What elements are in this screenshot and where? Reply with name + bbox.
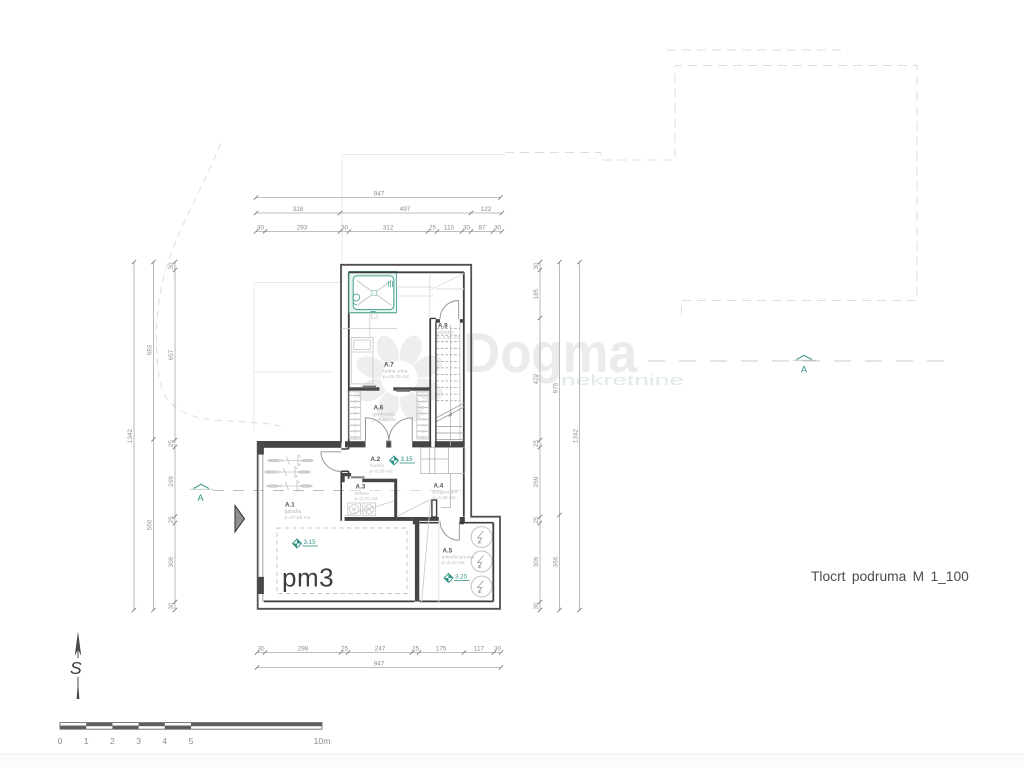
svg-text:tehnički prostor: tehnički prostor [442,555,476,561]
svg-text:p=15,26 m2: p=15,26 m2 [383,374,409,380]
svg-text:p=27,88 m2: p=27,88 m2 [285,515,311,521]
svg-text:30: 30 [257,224,265,231]
svg-text:306: 306 [533,556,540,567]
svg-text:radna soba: radna soba [383,369,408,375]
svg-text:30: 30 [533,262,540,270]
svg-text:366: 366 [552,556,559,567]
svg-text:25: 25 [533,440,540,448]
svg-text:p=3,70 m2: p=3,70 m2 [355,496,379,502]
svg-text:garaža: garaža [285,509,301,515]
svg-text:306: 306 [168,556,175,567]
svg-text:472: 472 [533,373,540,384]
svg-text:A.1: A.1 [285,502,295,509]
svg-text:1342: 1342 [127,428,134,443]
svg-text:Tlocrt podruma M 1_100: Tlocrt podruma M 1_100 [811,569,969,584]
svg-text:30: 30 [341,224,349,231]
svg-text:683: 683 [146,344,153,355]
svg-text:30: 30 [494,645,502,652]
svg-text:3.15: 3.15 [401,456,414,463]
svg-text:3: 3 [136,736,141,746]
svg-text:hodnik: hodnik [370,463,385,469]
svg-text:A.5: A.5 [443,548,453,555]
svg-text:947: 947 [374,190,385,197]
svg-text:25: 25 [412,645,420,652]
svg-text:p=4,80 m2: p=4,80 m2 [437,335,461,341]
svg-text:3.15: 3.15 [304,539,317,546]
svg-text:185: 185 [533,288,540,299]
svg-text:4: 4 [162,736,167,746]
svg-text:30: 30 [257,645,265,652]
svg-text:garderoba: garderoba [373,412,396,418]
svg-text:30: 30 [168,262,175,270]
svg-text:10m: 10m [314,736,331,746]
svg-text:0: 0 [58,736,63,746]
svg-text:A.6: A.6 [374,405,384,412]
svg-text:1: 1 [84,736,89,746]
svg-text:p=4,28 m2: p=4,28 m2 [433,495,457,501]
svg-text:A.2: A.2 [371,456,381,463]
svg-text:293: 293 [297,224,308,231]
svg-text:A.4: A.4 [434,483,444,490]
svg-text:298: 298 [298,645,309,652]
svg-text:p=3,08 m2: p=3,08 m2 [370,469,394,475]
svg-text:30: 30 [168,602,175,610]
svg-text:497: 497 [400,206,411,213]
svg-text:30: 30 [463,224,471,231]
svg-text:predprostor: predprostor [433,490,458,496]
svg-text:25: 25 [168,440,175,448]
svg-text:A: A [197,493,204,504]
svg-text:117: 117 [474,645,485,652]
svg-text:328: 328 [293,206,304,213]
svg-text:p=5,40 m2: p=5,40 m2 [373,417,397,423]
svg-text:p=4,20 m2: p=4,20 m2 [442,560,466,566]
svg-text:A.3: A.3 [356,484,366,491]
svg-text:947: 947 [374,660,385,667]
svg-text:A: A [801,365,808,376]
svg-text:A.7: A.7 [384,362,394,369]
svg-text:660: 660 [146,519,153,530]
svg-text:1342: 1342 [572,428,579,443]
svg-text:30: 30 [533,602,540,610]
svg-text:976: 976 [552,382,559,393]
svg-text:25: 25 [533,516,540,524]
svg-text:25: 25 [168,516,175,524]
svg-text:657: 657 [168,349,175,360]
svg-text:312: 312 [383,224,394,231]
svg-text:pm3: pm3 [282,563,334,593]
svg-text:247: 247 [375,645,386,652]
svg-text:269: 269 [533,476,540,487]
svg-text:25: 25 [429,224,437,231]
svg-text:ostava: ostava [355,491,370,497]
svg-text:3.20: 3.20 [455,574,468,581]
svg-text:stubište: stubište [437,330,454,336]
svg-text:30: 30 [494,224,502,231]
svg-text:110: 110 [444,224,455,231]
svg-text:2: 2 [110,736,115,746]
svg-text:A.8: A.8 [438,323,448,330]
svg-text:122: 122 [481,206,492,213]
svg-text:87: 87 [478,224,486,231]
svg-text:S: S [70,658,82,678]
svg-text:175: 175 [436,645,447,652]
svg-text:269: 269 [168,476,175,487]
svg-text:5: 5 [189,736,194,746]
svg-text:25: 25 [341,645,349,652]
